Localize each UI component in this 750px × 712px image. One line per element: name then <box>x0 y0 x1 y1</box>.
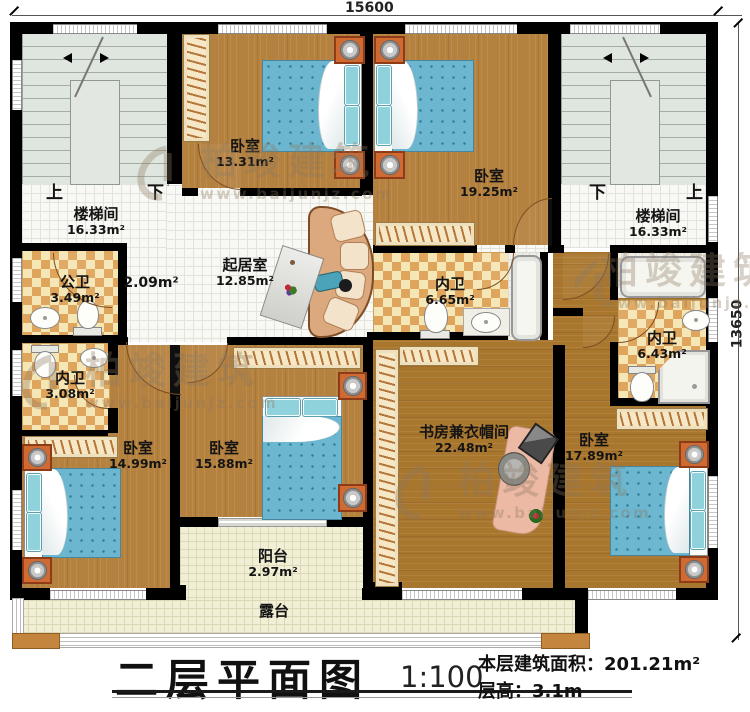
dimension-right: 13650 <box>729 300 745 349</box>
plan-title: 二层平面图 <box>115 646 370 708</box>
wall-bedroomSM-south-a <box>180 517 218 527</box>
room-label-bath-center: 内卫6.65m² <box>425 276 474 307</box>
lamp-icon <box>380 40 400 60</box>
room-label-public-bath: 公卫3.49m² <box>50 274 99 305</box>
wall-bathR-west-b <box>610 342 618 404</box>
lamp-icon <box>685 560 704 579</box>
wall-bathR-west-a <box>610 252 618 300</box>
nightstand <box>22 557 52 584</box>
room-label-bedroom-sm: 卧室15.88m² <box>195 440 253 471</box>
wall-bedroomNW-south-b <box>240 188 362 196</box>
sink <box>471 312 501 333</box>
nightstand <box>374 151 405 179</box>
room-label-study: 书房兼衣帽间22.48m² <box>419 424 509 455</box>
stair-down-label: 下 <box>589 178 606 203</box>
terrace-railing-left <box>12 598 24 636</box>
plan-scale: 1:100 <box>400 660 484 694</box>
window-bottom-2 <box>402 590 522 600</box>
window-right-3 <box>708 476 718 548</box>
sink <box>30 307 60 329</box>
sink <box>682 310 710 331</box>
person-head <box>339 279 352 292</box>
wardrobe-bedroom-ne <box>375 222 475 246</box>
room-label-stair-right: 楼梯间16.33m² <box>629 208 687 239</box>
bed-se-sheet <box>664 467 689 553</box>
wall-bathL-east-a <box>108 343 118 375</box>
window-left-4 <box>12 490 22 550</box>
bed-sm-pillow <box>266 399 300 416</box>
toilet <box>630 372 654 402</box>
bathtub <box>511 255 542 341</box>
lamp-icon <box>380 155 400 175</box>
room-label-terrace: 露台 <box>259 603 289 620</box>
plant-icon <box>528 508 544 524</box>
terrace-floor <box>20 600 588 633</box>
room-label-bedroom-se: 卧室17.89m² <box>565 432 623 463</box>
wall-corridor-bedroomSE <box>553 308 583 316</box>
wall-bathL-east-b <box>108 408 118 433</box>
bed-sm-pillow2 <box>303 399 337 416</box>
wall-bedroomNW-south-a <box>182 188 198 196</box>
office-chair <box>498 452 530 486</box>
nightstand <box>334 36 365 64</box>
lamp-icon <box>340 40 360 60</box>
wall-study-east <box>553 345 565 588</box>
stair-up-label: 上 <box>686 178 703 203</box>
bed-ne-pillow2 <box>377 106 391 145</box>
stair-landing-left <box>70 80 120 185</box>
sofa-cushion <box>340 242 369 270</box>
dim-tick <box>731 633 741 643</box>
stair-landing-right <box>610 80 660 185</box>
lamp-icon <box>28 561 47 580</box>
lamp-icon <box>343 376 363 396</box>
lamp-icon <box>343 488 363 508</box>
room-label-bath-right: 内卫6.43m² <box>637 330 686 361</box>
window-top-2 <box>218 24 327 34</box>
wall-bottom-e <box>676 588 718 600</box>
wall-balcony-stub-w <box>176 585 186 600</box>
window-bottom-1 <box>50 590 146 600</box>
bed-nw-sheet <box>318 61 344 149</box>
bed-sw-pillow2 <box>27 513 41 551</box>
window-left-2 <box>12 258 22 302</box>
dimension-top: 15600 <box>345 0 394 16</box>
floor-height-text: 层高：3.1m <box>478 677 583 703</box>
bed-sw-pillow <box>27 474 41 512</box>
nightstand <box>338 484 367 512</box>
wardrobe-bedroom-nw <box>183 34 210 142</box>
wall-pubbath-north <box>10 243 125 251</box>
nightstand <box>374 36 405 64</box>
room-label-bedroom-ne: 卧室19.25m² <box>460 168 518 199</box>
stair-up-label: 上 <box>46 178 63 203</box>
room-label-bedroom-sw: 卧室14.99m² <box>109 440 167 471</box>
sink <box>80 348 108 368</box>
room-label-stair-left: 楼梯间16.33m² <box>67 206 125 237</box>
bed-nw-pillow2 <box>345 106 359 145</box>
wall-terrace-end <box>575 600 588 633</box>
wall-bottom-d <box>522 588 588 600</box>
bed-ne-pillow <box>377 66 391 105</box>
wardrobe-study-west <box>375 349 399 587</box>
bed-se-pillow <box>691 472 705 510</box>
wall-stairhallR-south-b <box>610 245 718 253</box>
window-left-3 <box>12 350 22 396</box>
stair-arrow-left <box>58 53 72 63</box>
room-label-balcony: 阳台2.97m² <box>248 548 297 579</box>
nightstand <box>334 151 365 179</box>
nightstand <box>338 372 367 400</box>
floor-area-text: 本层建筑面积：201.21m² <box>478 650 700 676</box>
bathtub <box>620 256 706 298</box>
stair-arrow-right2 <box>640 53 654 63</box>
bed-nw-pillow <box>345 66 359 105</box>
window-left-1 <box>12 60 22 110</box>
table-flowers <box>283 282 297 296</box>
terrace-step-left <box>12 633 60 649</box>
wall-pubbath-east <box>118 243 127 343</box>
bed-se-pillow2 <box>691 511 705 549</box>
lamp-icon <box>685 445 704 464</box>
window-bottom-3 <box>588 590 676 600</box>
lamp-icon <box>340 155 360 175</box>
wall-mid-h-b <box>227 337 373 345</box>
window-right-1 <box>708 196 718 242</box>
table-item <box>290 260 295 265</box>
wardrobe-study-north <box>399 346 479 366</box>
wardrobe-bedroom-sm <box>233 347 361 369</box>
floor-plan: 15600 13650 楼梯间16.33m² 上 下 楼梯间16.33m² 下 … <box>0 0 750 712</box>
room-label-bedroom-nw: 卧室13.31m² <box>216 138 274 169</box>
terrace-step-right <box>541 633 590 649</box>
window-top-1 <box>53 24 137 34</box>
nightstand <box>679 441 709 468</box>
wall-stairhallR-south-a <box>548 245 564 253</box>
window-top-3 <box>405 24 517 34</box>
wall-stairL-east <box>167 32 182 184</box>
room-label-bath-left: 内卫3.08m² <box>45 370 94 401</box>
lamp-icon <box>28 448 47 467</box>
nightstand <box>679 556 709 583</box>
wall-pubbath-south <box>10 335 118 343</box>
wardrobe-bedroom-se <box>616 408 708 430</box>
stair-arrow-left2 <box>100 53 114 63</box>
area-label-hall: 2.09m² <box>123 276 178 292</box>
wall-stub-ne-door <box>505 245 515 253</box>
stair-arrow-right <box>598 53 612 63</box>
window-top-4 <box>570 24 660 34</box>
room-label-living: 起居室12.85m² <box>216 257 274 288</box>
wall-bathC-north <box>373 245 477 253</box>
stair-down-label: 下 <box>147 178 164 203</box>
nightstand <box>22 444 52 471</box>
